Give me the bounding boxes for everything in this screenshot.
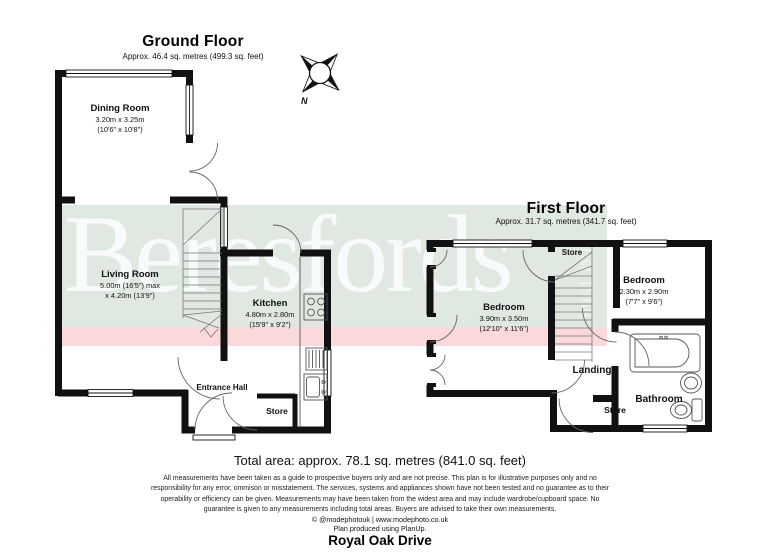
bathroom-label: Bathroom [631,394,687,405]
ground-floor-title: Ground Floor [73,33,313,51]
total-area-text: Total area: approx. 78.1 sq. metres (841… [0,453,760,468]
bathroom-name: Bathroom [631,394,687,405]
living-room-imperial: x 4.20m (13'9") [98,291,162,301]
entrance-hall-name: Entrance Hall [194,384,250,393]
gf-kitchen-fixtures [300,257,327,426]
entrance-hall-label: Entrance Hall [194,384,250,393]
landing-label: Landing [564,365,620,376]
living-room-label: Living Room 5.00m (16'5") max x 4.20m (1… [98,270,162,301]
dining-room-name: Dining Room [88,104,152,115]
ff-staircase [555,247,592,362]
gf-store-name: Store [249,407,305,417]
ff-store-top-label: Store [544,249,600,258]
gf-store-label: Store [249,407,305,417]
first-floor-plan [425,236,717,436]
bedroom-right-metric: 2.30m x 2.90m [612,287,676,297]
living-room-metric: 5.00m (16'5") max [98,281,162,291]
disclaimer-text: All measurements have been taken as a gu… [80,474,680,515]
landing-name: Landing [564,365,620,376]
produced-by-text: Plan produced using PlanUp. [0,524,760,533]
disclaimer-line: operability or efficiency can be given. … [80,495,680,505]
bedroom-left-label: Bedroom 3.90m x 3.50m (12'10" x 11'6") [472,303,536,334]
dining-room-imperial: (10'6" x 10'8") [88,125,152,135]
bedroom-right-imperial: (7'7" x 9'6") [612,297,676,307]
ff-store-bottom-label: Store [587,406,643,416]
floorplan-page: Beresfords Est 1968 Ground Floor Approx.… [0,0,760,552]
disclaimer-line: responsibility for any error, ommison or… [80,484,680,494]
gf-staircase [183,209,222,337]
property-address: Royal Oak Drive [0,533,760,548]
kitchen-name: Kitchen [238,299,302,310]
kitchen-metric: 4.80m x 2.80m [238,310,302,320]
bedroom-left-imperial: (12'10" x 11'6") [472,324,536,334]
disclaimer-line: All measurements have been taken as a gu… [80,474,680,484]
bedroom-left-name: Bedroom [472,303,536,314]
first-floor-title: First Floor [446,200,686,218]
kitchen-imperial: (15'9" x 9'2") [238,320,302,330]
dining-room-metric: 3.20m x 3.25m [88,115,152,125]
bedroom-right-label: Bedroom 2.30m x 2.90m (7'7" x 9'6") [612,276,676,307]
ff-store-bottom-name: Store [587,406,643,416]
first-floor-subtitle: Approx. 31.7 sq. metres (341.7 sq. feet) [446,217,686,226]
dining-room-label: Dining Room 3.20m x 3.25m (10'6" x 10'8"… [88,104,152,135]
bedroom-left-metric: 3.90m x 3.50m [472,314,536,324]
ff-store-top-name: Store [544,249,600,258]
photographer-credit: © @modephotouk | www.modephoto.co.uk [0,515,760,524]
ground-floor-subtitle: Approx. 46.4 sq. metres (499.3 sq. feet) [73,52,313,61]
living-room-name: Living Room [98,270,162,281]
disclaimer-line: guarantee is given to any measurements i… [80,505,680,515]
kitchen-label: Kitchen 4.80m x 2.80m (15'9" x 9'2") [238,299,302,330]
bedroom-right-name: Bedroom [612,276,676,287]
compass-north-label: N [301,96,308,106]
